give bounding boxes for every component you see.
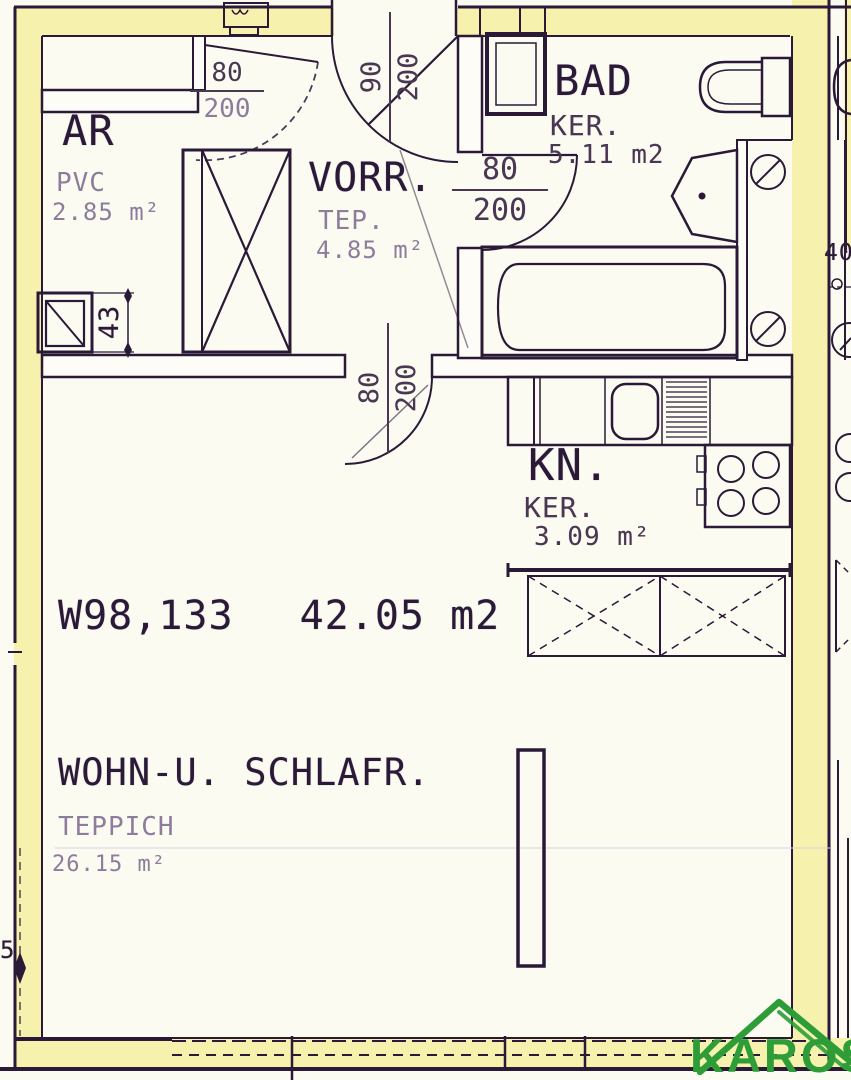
- fraction-bar: [190, 90, 264, 92]
- room-bad-name: BAD: [554, 60, 633, 102]
- unit-total-area: 42.05 m2: [300, 593, 501, 639]
- door-bad-size: 80 200: [452, 152, 548, 228]
- boiler: [487, 34, 545, 114]
- room-ar-area: 2.85 m²: [52, 200, 160, 224]
- counter: [508, 377, 792, 445]
- stove-icon: [705, 445, 790, 527]
- dim-left: 5: [0, 938, 15, 962]
- radiator-icon: [518, 750, 544, 966]
- room-wohn-floor: TEPPICH: [58, 814, 175, 840]
- drainer-hatch: [666, 382, 707, 437]
- room-kn-name: KN.: [528, 444, 610, 488]
- wohn-fixtures: [518, 750, 544, 966]
- room-ar-floor: PVC: [56, 170, 106, 196]
- room-bad-area: 5.11 m2: [548, 142, 665, 168]
- shaft-icon: [38, 293, 92, 352]
- washbasin-icon: [672, 150, 737, 242]
- room-vorr-name: VORR.: [308, 158, 433, 198]
- unit-id: W98,133: [58, 593, 234, 639]
- door-ar-size: 80 200: [190, 58, 264, 124]
- room-bad-floor: KER.: [550, 112, 621, 140]
- wall-right: [792, 0, 830, 1068]
- wall-left: [14, 8, 42, 1068]
- fraction-bar: [389, 12, 391, 142]
- fraction-bar: [452, 189, 548, 191]
- unit-label: W98,13342.05 m2: [58, 596, 500, 636]
- door-entrance-size: 90 200: [356, 12, 440, 142]
- sink-icon: [612, 384, 658, 439]
- room-vorr-floor: TEP.: [318, 208, 385, 234]
- room-ar-name: AR: [62, 110, 115, 152]
- room-wohn-area: 26.15 m²: [52, 854, 166, 876]
- cabinet: [528, 576, 785, 656]
- dim-shaft: 43: [96, 292, 128, 352]
- room-kn-floor: KER.: [524, 494, 595, 522]
- room-wohn-name: WOHN-U. SCHLAFR.: [58, 754, 430, 791]
- logo-text: KAROS: [690, 1028, 851, 1080]
- room-kn-area: 3.09 m²: [534, 524, 651, 550]
- door-wohn-size: 80 200: [354, 323, 438, 453]
- toilet-icon: [700, 62, 762, 112]
- wardrobe-icon: [183, 150, 290, 352]
- wall-right-sliver: [844, 0, 851, 250]
- room-vorr-area: 4.85 m²: [316, 238, 424, 262]
- floor-plan-scan: AR PVC 2.85 m² VORR. TEP. 4.85 m² BAD KE…: [0, 0, 851, 1080]
- fraction-bar: [387, 323, 389, 453]
- dim-right: 40: [824, 242, 851, 265]
- bathtub-icon: [482, 247, 737, 358]
